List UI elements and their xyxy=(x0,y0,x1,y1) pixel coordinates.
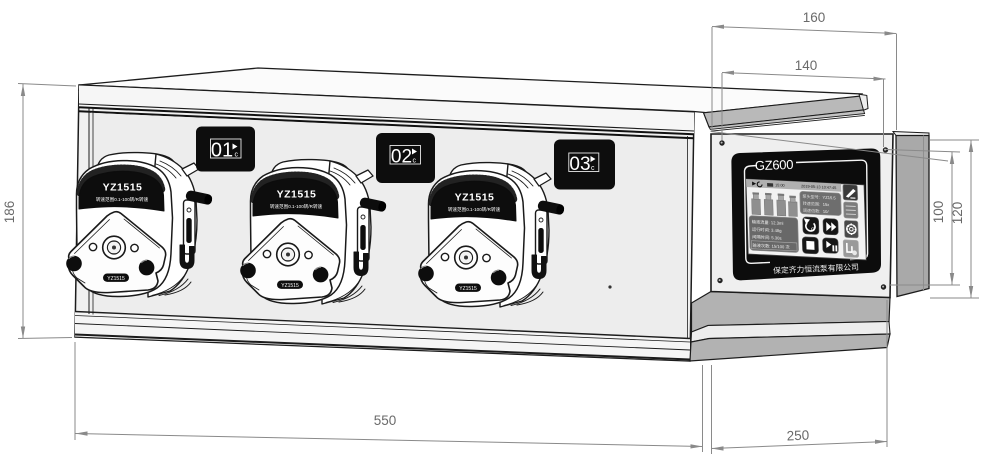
svg-text:550: 550 xyxy=(374,413,397,428)
svg-text:GZ600: GZ600 xyxy=(755,157,794,173)
svg-text:250: 250 xyxy=(786,428,809,444)
svg-text:120: 120 xyxy=(950,202,965,225)
svg-text:泵头型号:: 泵头型号: xyxy=(802,193,820,200)
svg-text:c: c xyxy=(591,165,595,172)
svg-text:YZ15.5: YZ15.5 xyxy=(822,195,836,201)
svg-text:c: c xyxy=(235,152,239,159)
svg-text:15x: 15x xyxy=(823,202,830,207)
svg-text:c: c xyxy=(413,158,417,165)
svg-text:01: 01 xyxy=(211,140,233,162)
svg-text:160: 160 xyxy=(803,10,826,25)
svg-text:调速倍数:: 调速倍数: xyxy=(803,207,821,214)
svg-text:C: C xyxy=(811,227,815,233)
svg-text:15:00: 15:00 xyxy=(775,183,785,187)
svg-text:03: 03 xyxy=(569,154,590,175)
svg-text:转速范围:: 转速范围: xyxy=(803,200,821,207)
svg-text:186: 186 xyxy=(2,201,17,224)
svg-text:02: 02 xyxy=(391,147,412,168)
svg-text:140: 140 xyxy=(795,58,818,73)
svg-text:100: 100 xyxy=(931,201,946,224)
svg-text:10/: 10/ xyxy=(823,209,830,214)
